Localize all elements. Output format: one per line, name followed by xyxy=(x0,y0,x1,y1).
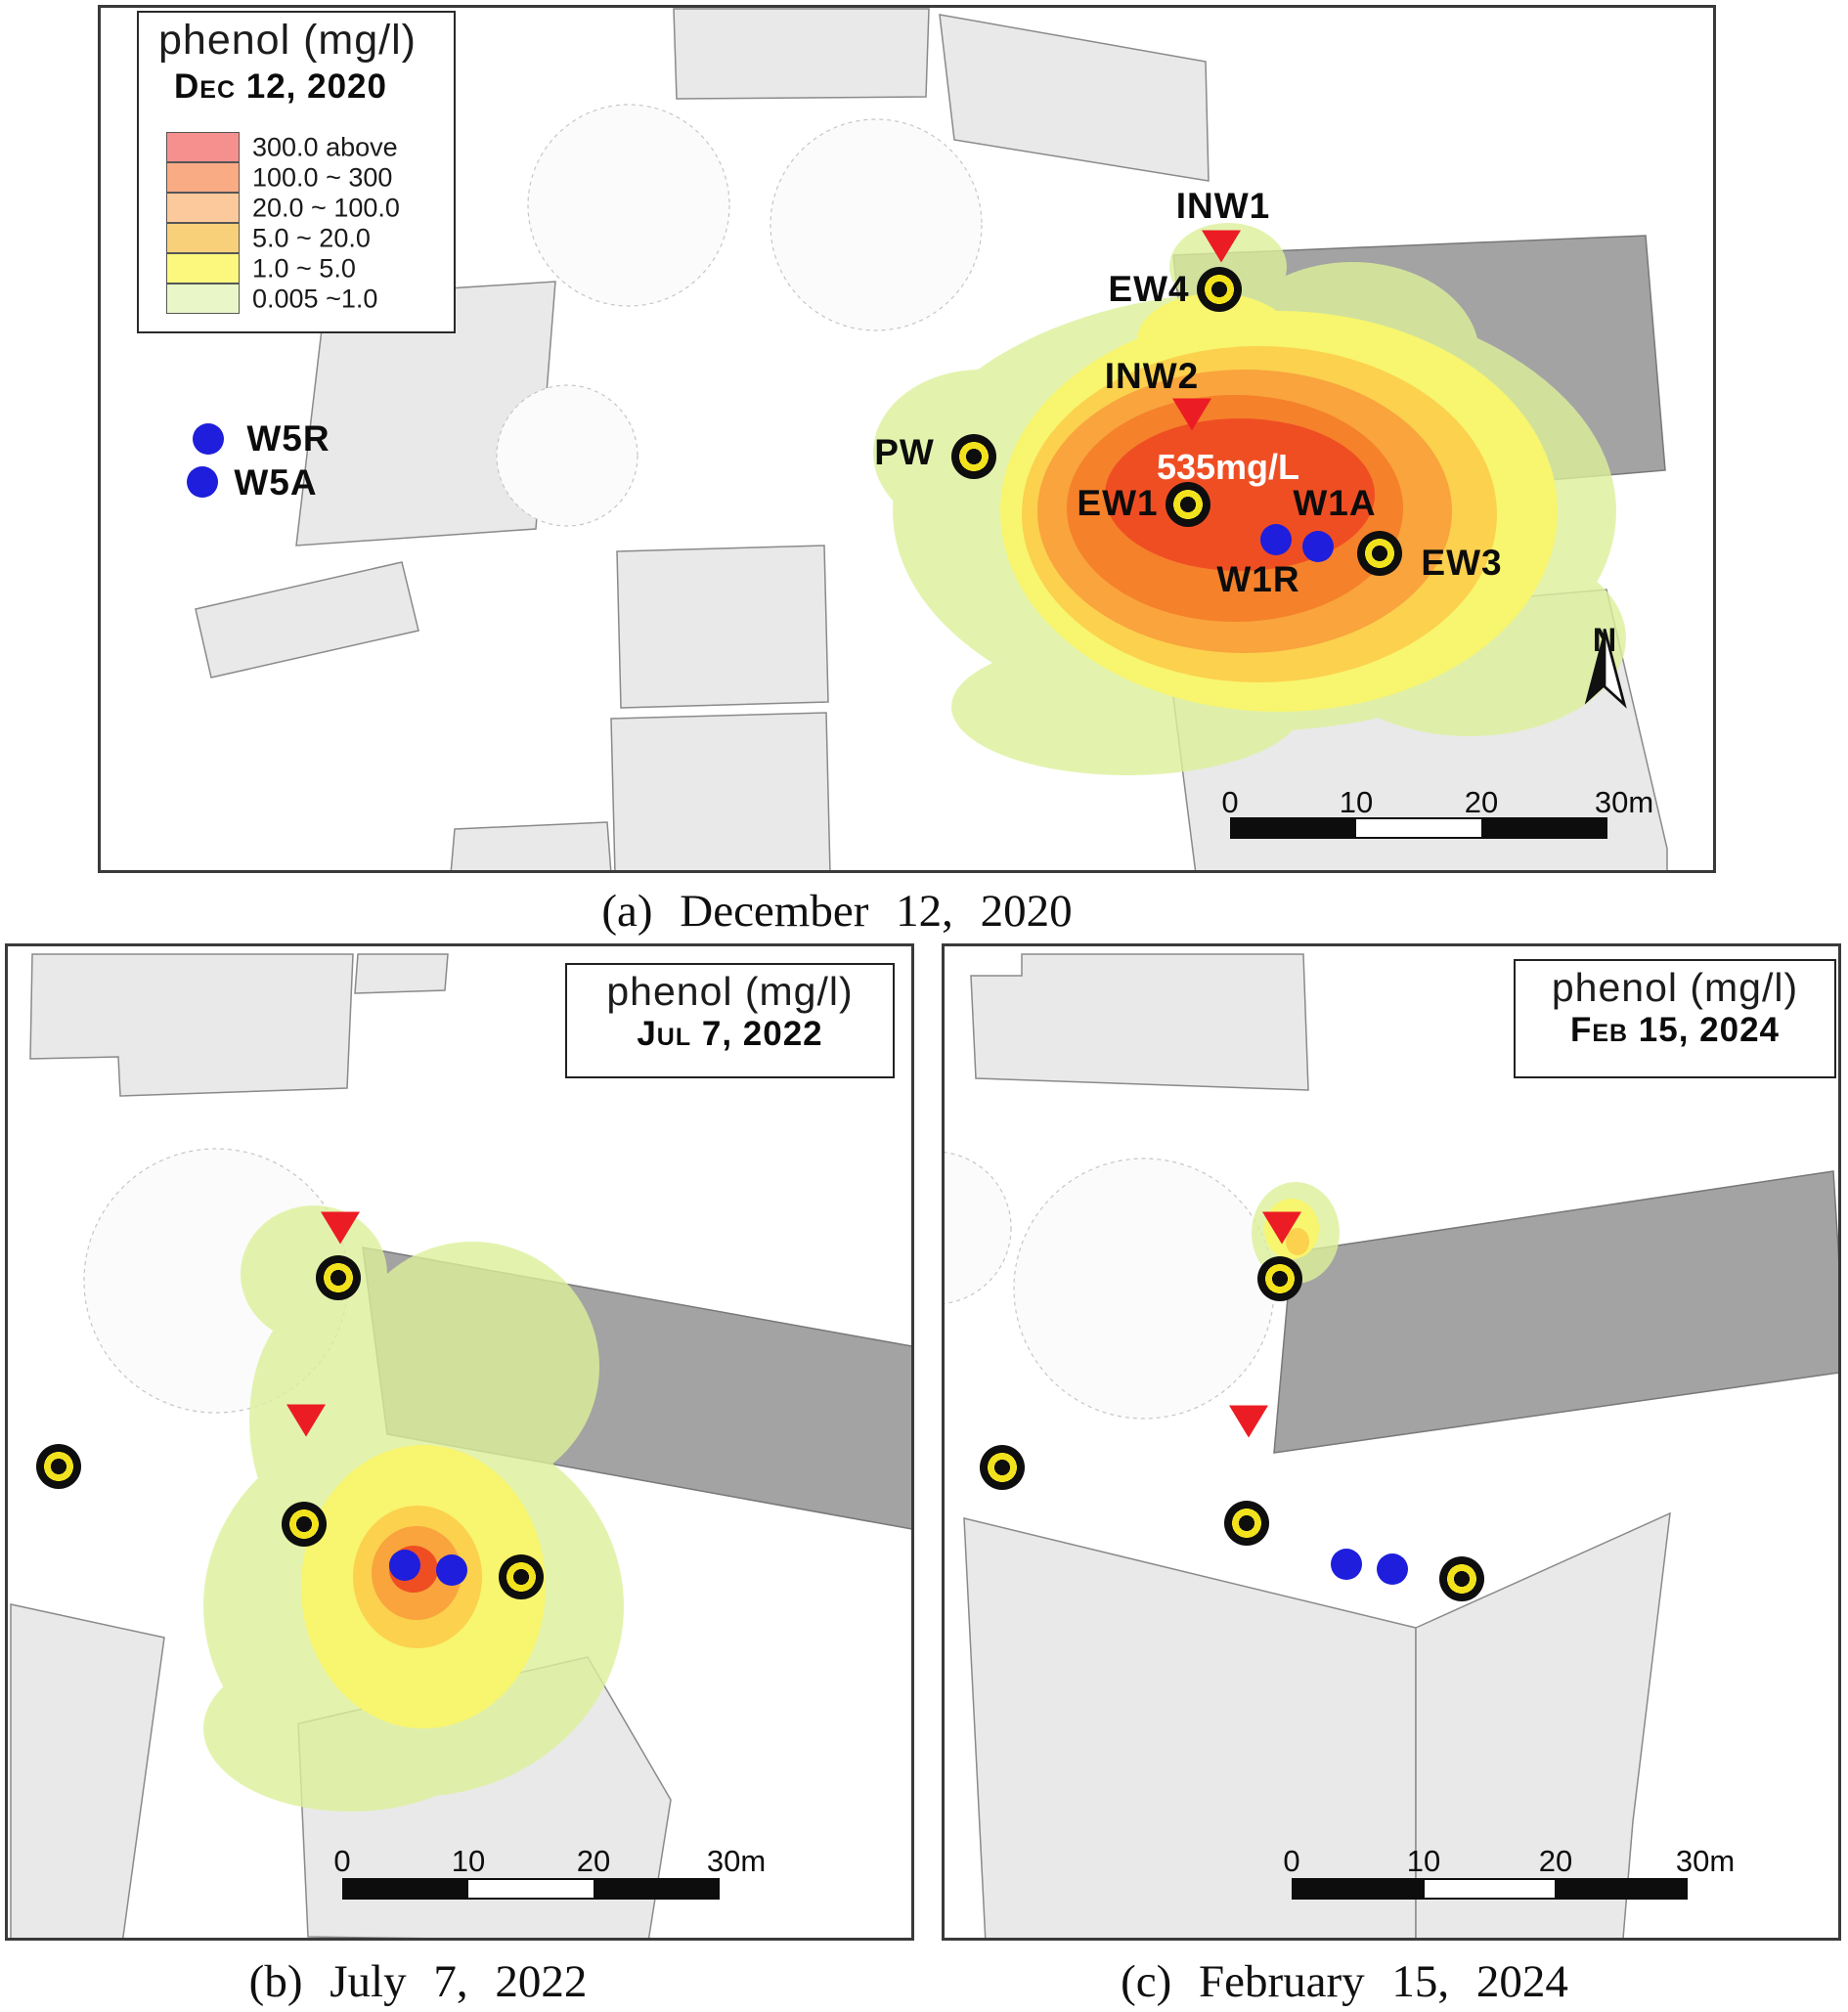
scale-tick-label: 10 xyxy=(1340,785,1373,820)
legend-swatch xyxy=(166,284,240,314)
building-footprint xyxy=(674,9,929,99)
blue-dot-icon-w1r xyxy=(1331,1549,1362,1580)
panel-date: Feb 15, 2024 xyxy=(1516,1011,1834,1050)
scale-tick-label: 0 xyxy=(333,1844,350,1879)
figure-phenol-plume-maps: phenol (mg/l) Dec 12, 2020 300.0 above 1… xyxy=(0,0,1848,2012)
legend-label: 100.0 ~ 300 xyxy=(252,162,392,193)
well-icon-ew4 xyxy=(316,1255,361,1300)
well-icon-pw xyxy=(36,1444,81,1489)
panel-title: phenol (mg/l) xyxy=(1516,965,1834,1011)
well-label-ew3: EW3 xyxy=(1421,543,1502,584)
legend-label: 20.0 ~ 100.0 xyxy=(252,193,400,223)
building-footprint xyxy=(971,954,1308,1090)
well-icon-ew4 xyxy=(1257,1256,1302,1301)
legend-row: 5.0 ~ 20.0 xyxy=(166,223,450,253)
scale-bar-segment xyxy=(1425,1880,1556,1898)
map-panel-b: phenol (mg/l) Jul 7, 2022 0 10 20 30m xyxy=(5,943,914,1941)
scale-tick-label: 10 xyxy=(1407,1844,1440,1879)
panel-date: Jul 7, 2022 xyxy=(567,1015,893,1054)
red-triangle-icon-inw2 xyxy=(1172,399,1211,431)
red-triangle-icon-inw1 xyxy=(1202,231,1241,263)
scale-bar-segment xyxy=(1555,1880,1686,1898)
legend-swatch xyxy=(166,132,240,162)
blue-dot-icon-w1a xyxy=(436,1554,467,1586)
scale-bar xyxy=(1230,817,1607,839)
caption-a: (a) December 12, 2020 xyxy=(505,885,1169,938)
blue-dot-icon-w1r xyxy=(389,1550,420,1581)
scale-bar xyxy=(1292,1878,1688,1900)
well-label-pw: PW xyxy=(874,432,935,473)
legend-swatch xyxy=(166,162,240,193)
tank-outline xyxy=(945,1152,1011,1304)
scale-tick-label: 0 xyxy=(1283,1844,1299,1879)
well-icon-ew1 xyxy=(1166,482,1210,527)
red-triangle-icon-inw2 xyxy=(286,1405,326,1437)
legend-swatch xyxy=(166,253,240,284)
north-arrow: N xyxy=(1575,622,1634,660)
well-icon-ew3 xyxy=(499,1554,544,1599)
scale-tick-label: 20 xyxy=(1539,1844,1572,1879)
legend-box: phenol (mg/l) Dec 12, 2020 300.0 above 1… xyxy=(137,11,456,333)
peak-concentration-annotation: 535mg/L xyxy=(1157,447,1299,488)
caption-b: (b) July 7, 2022 xyxy=(161,1955,675,2008)
scale-tick-label: 10 xyxy=(452,1844,485,1879)
legend-title: phenol (mg/l) xyxy=(158,17,417,65)
blue-dot-icon-w1r xyxy=(1260,524,1292,555)
scale-bar-segment xyxy=(594,1880,718,1898)
tank-outline xyxy=(1014,1159,1274,1419)
well-icon-ew3 xyxy=(1439,1556,1484,1601)
title-box-c: phenol (mg/l) Feb 15, 2024 xyxy=(1514,959,1836,1078)
well-icon-ew3 xyxy=(1357,531,1402,576)
blue-dot-icon-w1a xyxy=(1302,531,1334,562)
well-icon-pw xyxy=(980,1445,1025,1490)
panel-title: phenol (mg/l) xyxy=(567,969,893,1015)
legend-label: 5.0 ~ 20.0 xyxy=(252,223,371,253)
legend-label: 1.0 ~ 5.0 xyxy=(252,253,356,284)
tank-outline xyxy=(770,119,982,330)
legend-row: 1.0 ~ 5.0 xyxy=(166,253,450,284)
legend-row: 0.005 ~1.0 xyxy=(166,284,450,314)
red-triangle-icon-inw1 xyxy=(1262,1212,1301,1245)
building-footprint xyxy=(451,822,611,873)
scale-bar xyxy=(342,1878,720,1900)
scale-bar-segment xyxy=(468,1880,593,1898)
scale-tick-label: 20 xyxy=(577,1844,610,1879)
legend-row: 300.0 above xyxy=(166,132,450,162)
caption-c: (c) February 15, 2024 xyxy=(1085,1955,1604,2008)
site-map-c xyxy=(945,946,1841,1941)
scale-tick-label: 30m xyxy=(1676,1844,1735,1879)
well-label-w5a: W5A xyxy=(234,462,317,503)
red-triangle-icon-inw2 xyxy=(1229,1406,1268,1438)
well-label-inw2: INW2 xyxy=(1105,356,1200,397)
legend-label: 0.005 ~1.0 xyxy=(252,284,377,314)
building-footprint xyxy=(11,1604,164,1941)
site-map-b xyxy=(8,946,914,1941)
scale-tick-label: 30m xyxy=(1595,785,1653,820)
building-footprint xyxy=(940,15,1209,181)
scale-bar-segment xyxy=(1356,819,1480,837)
scale-tick-label: 30m xyxy=(707,1844,766,1879)
title-box-b: phenol (mg/l) Jul 7, 2022 xyxy=(565,963,895,1078)
building-footprint xyxy=(30,954,353,1096)
building-footprint xyxy=(355,954,448,993)
legend-date: Dec 12, 2020 xyxy=(174,67,387,107)
legend-swatch xyxy=(166,223,240,253)
well-icon-ew1 xyxy=(282,1502,327,1547)
tank-outline xyxy=(528,105,729,306)
building-footprint-dark xyxy=(1274,1171,1841,1453)
legend-label: 300.0 above xyxy=(252,132,398,162)
blue-dot-icon-w5a xyxy=(187,466,218,498)
scale-bar-segment xyxy=(1481,819,1606,837)
well-label-inw1: INW1 xyxy=(1176,186,1271,227)
scale-bar-segment xyxy=(344,1880,468,1898)
building-footprint xyxy=(617,546,828,708)
well-icon-ew1 xyxy=(1224,1501,1269,1546)
building-footprint xyxy=(611,713,830,873)
well-label-w1r: W1R xyxy=(1216,559,1299,600)
scale-tick-label: 20 xyxy=(1465,785,1498,820)
well-icon-ew4 xyxy=(1197,267,1242,312)
legend-swatch xyxy=(166,193,240,223)
blue-dot-icon-w5r xyxy=(193,423,224,455)
well-label-w1a: W1A xyxy=(1293,483,1376,524)
legend-row: 20.0 ~ 100.0 xyxy=(166,193,450,223)
blue-dot-icon-w1a xyxy=(1377,1553,1408,1585)
scale-tick-label: 0 xyxy=(1221,785,1238,820)
scale-bar-segment xyxy=(1294,1880,1425,1898)
tank-outline xyxy=(497,385,638,526)
building-footprint xyxy=(196,562,418,678)
well-label-ew1: EW1 xyxy=(1077,483,1158,524)
map-panel-c: phenol (mg/l) Feb 15, 2024 0 10 20 30m xyxy=(942,943,1841,1941)
scale-bar-segment xyxy=(1232,819,1356,837)
well-label-ew4: EW4 xyxy=(1108,269,1189,310)
well-label-w5r: W5R xyxy=(246,418,330,459)
red-triangle-icon-inw1 xyxy=(321,1212,360,1245)
legend-row: 100.0 ~ 300 xyxy=(166,162,450,193)
map-panel-a: phenol (mg/l) Dec 12, 2020 300.0 above 1… xyxy=(98,5,1716,873)
north-arrow-icon xyxy=(1575,622,1634,712)
well-icon-pw xyxy=(951,434,996,479)
